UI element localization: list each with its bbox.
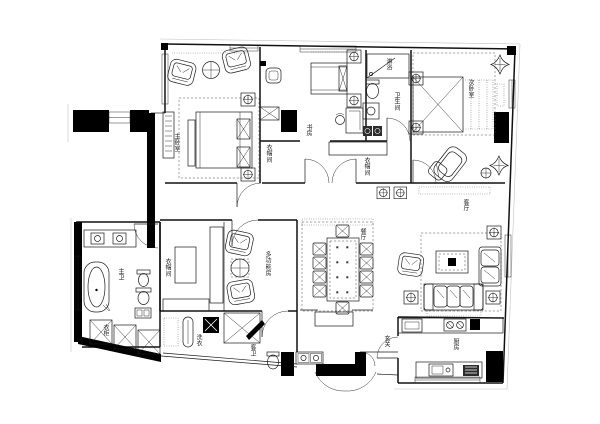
room-label-wardrobe: 衣柜 bbox=[102, 324, 108, 337]
room-label-bathroom: 卫生间 bbox=[393, 92, 399, 111]
floor-plan-drawing bbox=[0, 0, 600, 424]
study-furniture bbox=[260, 50, 363, 133]
multifunction-furniture bbox=[224, 229, 255, 306]
master-bath-fixtures bbox=[84, 230, 160, 354]
walkin-closet-fixtures bbox=[163, 227, 223, 311]
laundry-fixtures bbox=[164, 317, 219, 347]
room-label-study: 书房 bbox=[305, 124, 311, 137]
room-label-kitchen: 厨房 bbox=[452, 338, 458, 351]
room-label-master-bedroom: 主卧室 bbox=[173, 133, 179, 152]
room-label-living: 客厅 bbox=[462, 199, 468, 212]
living-room-furniture bbox=[397, 226, 501, 316]
doors bbox=[134, 118, 436, 391]
loveseat-icon bbox=[479, 247, 501, 286]
room-label-laundry: 洗衣 bbox=[195, 334, 201, 347]
walls bbox=[76, 44, 515, 383]
floor-plan-canvas: 主卧室 书房 衣帽间 淋浴 卫生间 次卧室 衣帽间 衣帽间 多功能房 餐厅 客厅… bbox=[0, 0, 600, 424]
room-label-second-bedroom: 次卧室 bbox=[467, 79, 473, 98]
room-label-corridor-closet: 衣帽间 bbox=[363, 157, 369, 176]
foyer-guest-bath-fixtures bbox=[224, 313, 323, 369]
corridor-fixtures bbox=[329, 142, 490, 199]
room-label-study-closet: 衣帽间 bbox=[265, 144, 271, 163]
master-bedroom-furniture bbox=[163, 46, 259, 181]
room-label-dining: 餐厅 bbox=[359, 228, 365, 241]
room-label-walkin-closet: 衣帽间 bbox=[164, 258, 170, 277]
room-label-master-bath: 主卫 bbox=[117, 268, 123, 281]
room-label-multifunction: 多功能房 bbox=[264, 251, 270, 277]
room-label-shower: 淋浴 bbox=[385, 58, 391, 71]
room-label-foyer: 玄关 bbox=[383, 335, 389, 348]
room-label-guest-bath: 客卫 bbox=[249, 344, 255, 357]
windows bbox=[75, 45, 515, 383]
